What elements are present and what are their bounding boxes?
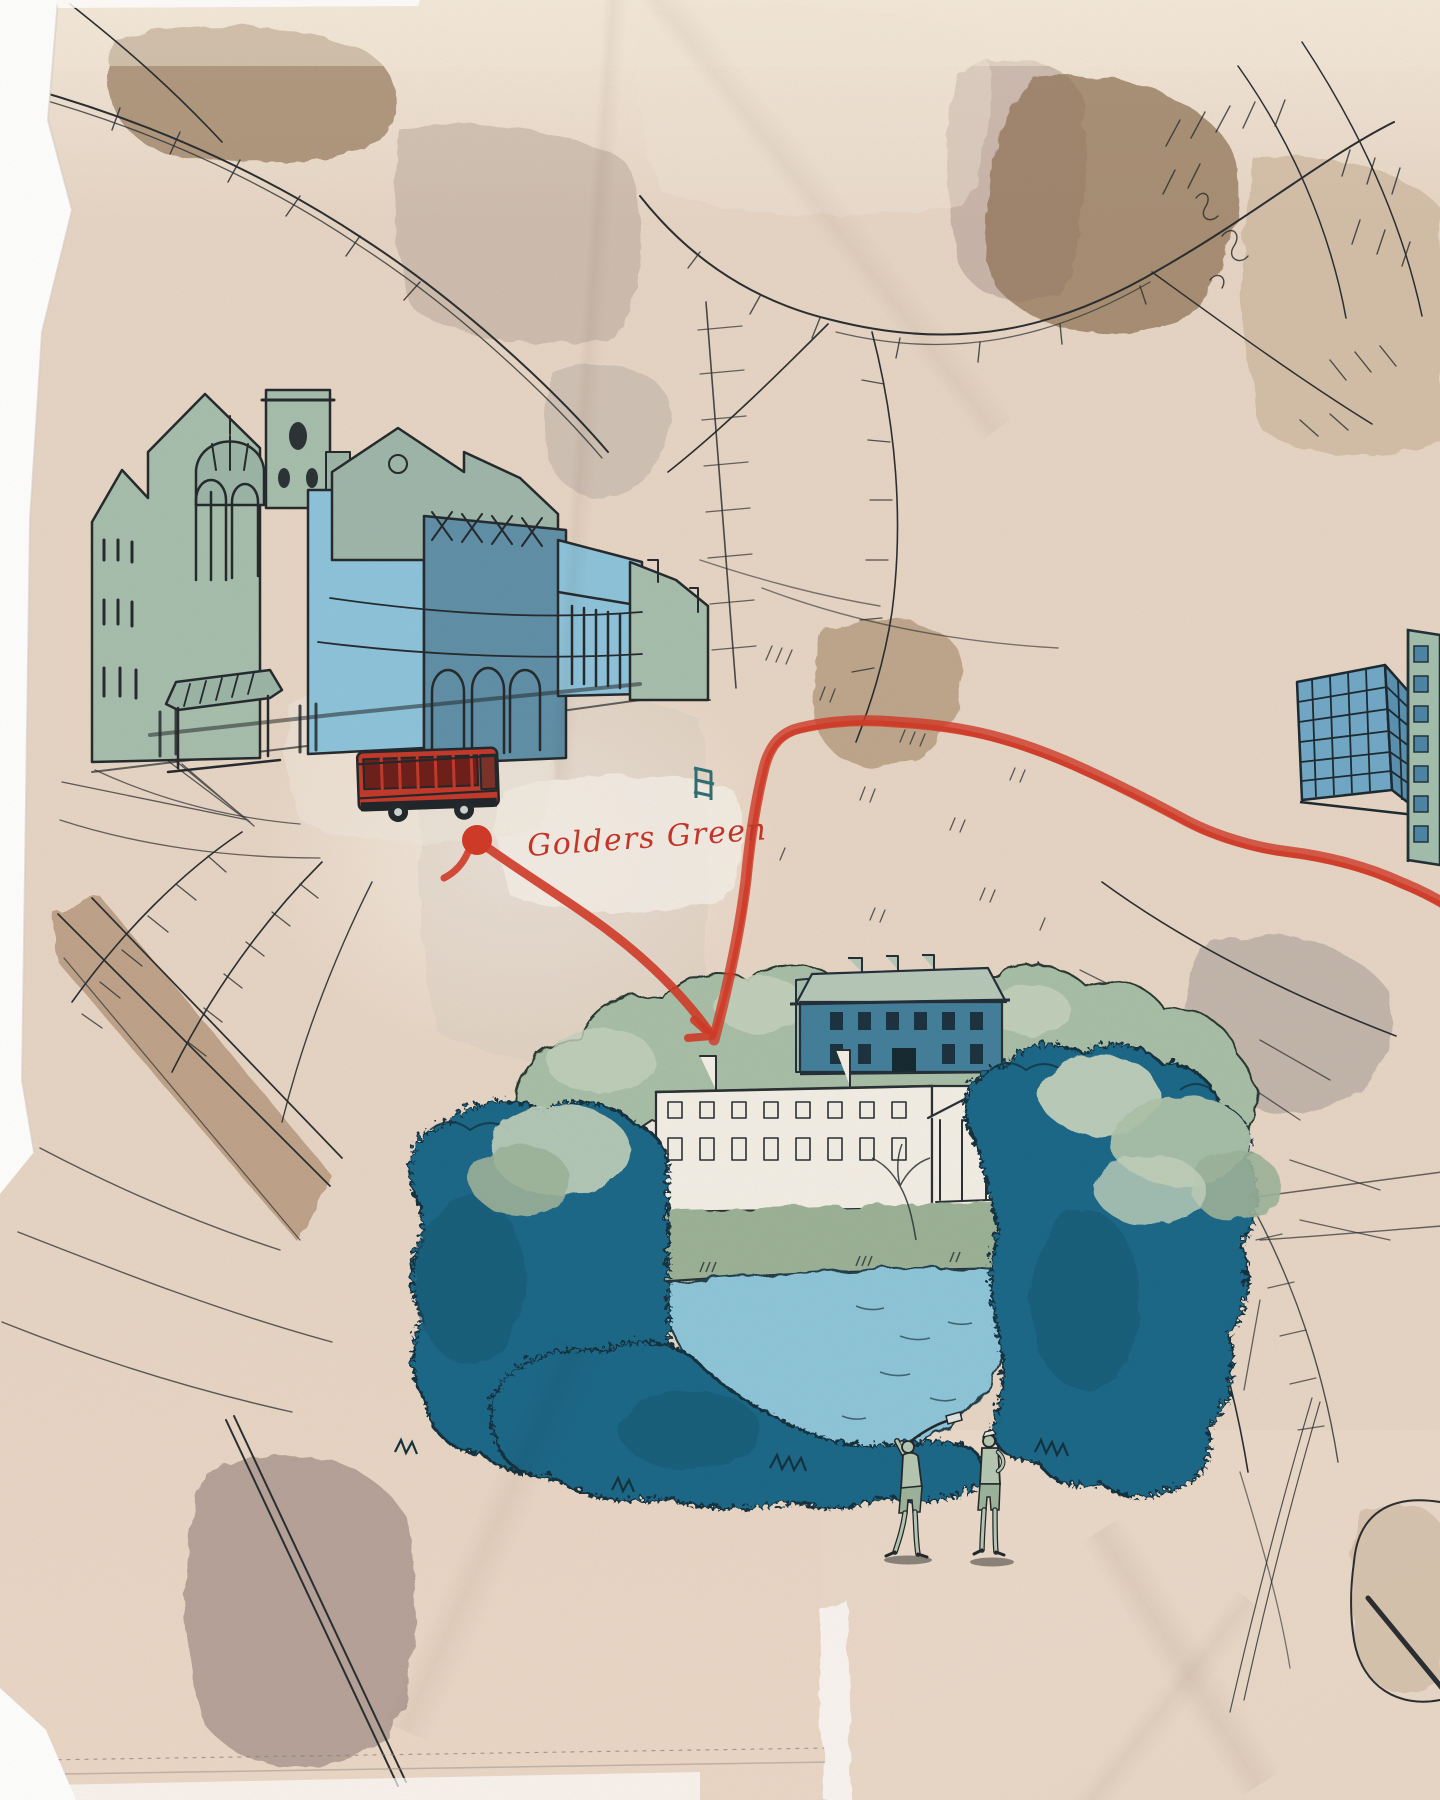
- illustrated-map: Golders Green: [0, 0, 1440, 1800]
- paper-grain-overlay: [0, 0, 1440, 1800]
- map-artwork: Golders Green: [0, 0, 1440, 1800]
